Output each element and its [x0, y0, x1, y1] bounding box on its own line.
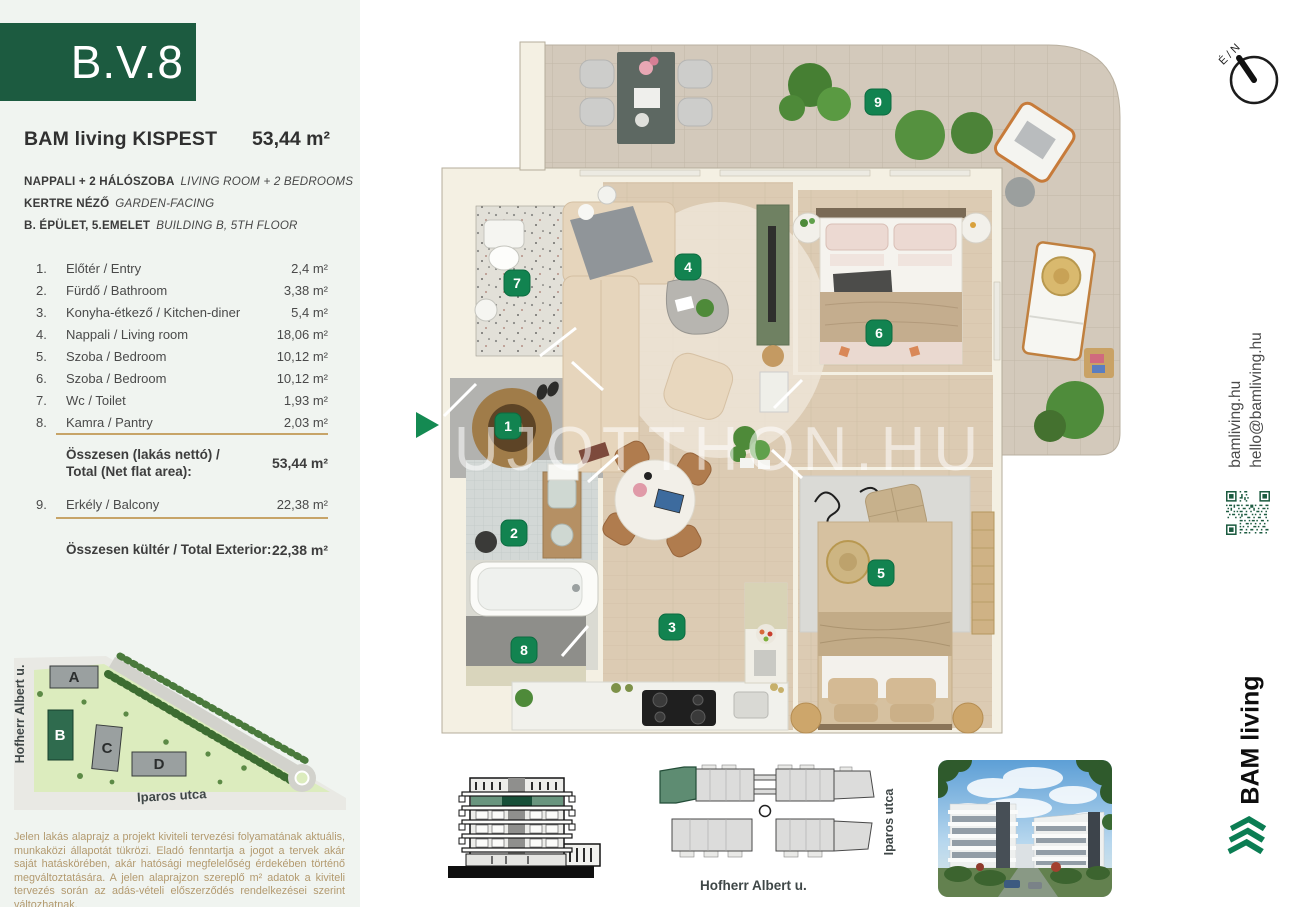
- room-name: Erkély / Balcony: [66, 497, 159, 519]
- spec-hu: KERTRE NÉZŐ: [24, 197, 109, 210]
- room-num: 3.: [36, 305, 66, 327]
- room-area: 10,12 m²: [277, 371, 328, 393]
- room-name: Konyha-étkező / Kitchen-diner: [66, 305, 240, 327]
- table-row: 2.Fürdő / Bathroom3,38 m²: [36, 283, 328, 305]
- table-row: 1.Előtér / Entry2,4 m²: [36, 261, 328, 283]
- balcony-row: 9. Erkély / Balcony 22,38 m²: [36, 497, 328, 519]
- total-exterior-value: 22,38 m²: [272, 542, 328, 558]
- tv-unit: [757, 205, 789, 412]
- ground: [448, 866, 594, 878]
- svg-text:6: 6: [875, 325, 883, 341]
- room-area: 10,12 m²: [277, 349, 328, 371]
- brand-logo-text: BAM living: [1237, 675, 1266, 804]
- room-num: 2.: [36, 283, 66, 305]
- dining-flowers: [633, 483, 647, 497]
- book-table: [1084, 348, 1114, 378]
- table-row: 4.Nappali / Living room18,06 m²: [36, 327, 328, 349]
- pillow: [894, 224, 956, 250]
- table-row: 3.Konyha-étkező / Kitchen-diner5,4 m²: [36, 305, 328, 327]
- toilet-tank: [484, 220, 524, 248]
- terrace-side-table: [1005, 177, 1035, 207]
- total-exterior-label: Összesen kültér / Total Exterior:: [66, 541, 271, 558]
- website-text: bamliving.hu: [1225, 332, 1246, 468]
- room-table: 1.Előtér / Entry2,4 m² 2.Fürdő / Bathroo…: [36, 261, 328, 437]
- marker-6: 6: [866, 320, 892, 346]
- total-net-row: Összesen (lakás nettó) / Total (Net flat…: [66, 446, 328, 480]
- total-net-label-hu: Összesen (lakás nettó) /: [66, 446, 220, 463]
- contact-block: bamliving.hu hello@bamliving.hu: [1225, 332, 1267, 468]
- kitchen-column: [745, 583, 787, 683]
- toilet: [489, 246, 519, 270]
- kitchen-counter: [512, 682, 788, 730]
- room-area: 3,38 m²: [284, 283, 328, 305]
- annex: [562, 844, 600, 866]
- svg-text:5: 5: [877, 565, 885, 581]
- building-d-label: D: [154, 756, 165, 773]
- room-num: 7.: [36, 393, 66, 415]
- project-title: BAM living KISPEST: [24, 128, 217, 151]
- brochure-page: B.V.8 BAM living KISPEST 53,44 m² NAPPAL…: [0, 0, 1293, 907]
- spec-hu: B. ÉPÜLET, 5.EMELET: [24, 219, 150, 232]
- appliance: [754, 650, 776, 676]
- table-plant: [696, 299, 714, 317]
- svg-text:9: 9: [874, 94, 882, 110]
- room-name: Fürdő / Bathroom: [66, 283, 167, 305]
- duvet-fold: [818, 612, 952, 656]
- street-label-hofherr-vertical: Hofherr Albert u.: [13, 665, 27, 764]
- key-plan: [656, 763, 880, 859]
- room-num: 9.: [36, 497, 66, 519]
- nightstand: [961, 213, 991, 243]
- table-row: 5.Szoba / Bedroom10,12 m²: [36, 349, 328, 371]
- keyplan-core: [760, 806, 771, 817]
- cooktop: [642, 690, 716, 726]
- pillow: [828, 678, 878, 704]
- roundabout-center: [296, 772, 309, 785]
- watermark-text: UJOTTHON.HU: [454, 415, 986, 484]
- photo-left-building: [948, 802, 1018, 868]
- side-table: [791, 703, 821, 733]
- marker-3: 3: [659, 614, 685, 640]
- separator-line: [56, 517, 328, 519]
- sink: [734, 692, 768, 718]
- marker-5: 5: [868, 560, 894, 586]
- spec-en: GARDEN-FACING: [115, 197, 214, 210]
- room-name: Szoba / Bedroom: [66, 371, 166, 393]
- total-net-label-en: Total (Net flat area):: [66, 463, 220, 480]
- tray: [634, 88, 660, 108]
- floor-lamp: [598, 186, 616, 204]
- building-render-photo: [938, 760, 1112, 897]
- total-area-value: 53,44 m²: [252, 128, 330, 151]
- table-row: 6.Szoba / Bedroom10,12 m²: [36, 371, 328, 393]
- keyplan-street-right: Iparos utca: [882, 789, 896, 856]
- room-area: 2,4 m²: [291, 261, 328, 283]
- tv: [768, 226, 776, 322]
- email-text: hello@bamliving.hu: [1246, 332, 1267, 468]
- qr-code: [1226, 491, 1270, 535]
- basket: [762, 345, 784, 367]
- svg-text:4: 4: [684, 259, 692, 275]
- room-area: 18,06 m²: [277, 327, 328, 349]
- room-name: Szoba / Bedroom: [66, 349, 166, 371]
- photo-right-building: [1032, 812, 1104, 872]
- ground-floor: [466, 854, 566, 866]
- building-elevation: [446, 768, 606, 882]
- spec-line: NAPPALI + 2 HÁLÓSZOBALIVING ROOM + 2 BED…: [24, 175, 354, 197]
- spec-en: BUILDING B, 5TH FLOOR: [156, 219, 297, 232]
- disclaimer-text: Jelen lakás alaprajz a projekt kiviteli …: [14, 831, 345, 907]
- keyplan-street-bottom: Hofherr Albert u.: [700, 878, 807, 893]
- svg-text:3: 3: [668, 619, 676, 635]
- keyplan-units: [672, 769, 874, 851]
- bowl: [635, 113, 649, 127]
- svg-text:7: 7: [513, 275, 521, 291]
- total-exterior-row: Összesen kültér / Total Exterior: 22,38 …: [66, 541, 328, 558]
- table-row: 7.Wc / Toilet1,93 m²: [36, 393, 328, 415]
- room-num: 4.: [36, 327, 66, 349]
- svg-text:2: 2: [510, 525, 518, 541]
- marker-9: 9: [865, 89, 891, 115]
- brand-chevrons-icon: [1222, 816, 1270, 858]
- svg-text:8: 8: [520, 642, 528, 658]
- building-c-label: C: [102, 740, 113, 757]
- pillow: [826, 224, 888, 250]
- spec-hu: NAPPALI + 2 HÁLÓSZOBA: [24, 175, 175, 188]
- separator-line: [56, 433, 328, 435]
- spec-en: LIVING ROOM + 2 BEDROOMS: [181, 175, 354, 188]
- building-a-label: A: [69, 669, 80, 686]
- side-table: [953, 703, 983, 733]
- room-name: Előtér / Entry: [66, 261, 141, 283]
- room-name: Nappali / Living room: [66, 327, 188, 349]
- total-net-label: Összesen (lakás nettó) / Total (Net flat…: [66, 446, 220, 480]
- room-num: 1.: [36, 261, 66, 283]
- kitchen-plant: [515, 689, 533, 707]
- nightstand: [793, 213, 823, 243]
- spec-line: KERTRE NÉZŐGARDEN-FACING: [24, 197, 354, 219]
- headboard: [818, 724, 952, 730]
- total-net-value: 53,44 m²: [272, 455, 328, 471]
- keyplan-unit-highlighted: [660, 767, 696, 803]
- room-area: 22,38 m²: [277, 497, 328, 519]
- building-b-label: B: [55, 727, 66, 744]
- floor-plan: 1 2 3 4 5 6 7 8 9 UJOTTHON.HU: [420, 30, 1125, 735]
- spec-lines: NAPPALI + 2 HÁLÓSZOBALIVING ROOM + 2 BED…: [24, 175, 354, 241]
- laundry-basket: [475, 531, 497, 553]
- room-name: Wc / Toilet: [66, 393, 126, 415]
- wc-sink: [475, 299, 497, 321]
- title-row: BAM living KISPEST 53,44 m²: [24, 128, 330, 151]
- sidebar: B.V.8 BAM living KISPEST 53,44 m² NAPPAL…: [0, 0, 360, 907]
- compass: É / N: [1212, 34, 1288, 110]
- unit-code-badge: B.V.8: [0, 23, 196, 101]
- room-num: 5.: [36, 349, 66, 371]
- marker-7: 7: [504, 270, 530, 296]
- basin-round: [551, 524, 573, 546]
- headboard: [816, 208, 966, 218]
- marker-4: 4: [675, 254, 701, 280]
- pillow: [886, 678, 936, 704]
- marker-8: 8: [511, 637, 537, 663]
- room-area: 1,93 m²: [284, 393, 328, 415]
- room-area: 5,4 m²: [291, 305, 328, 327]
- spec-line: B. ÉPÜLET, 5.EMELETBUILDING B, 5TH FLOOR: [24, 219, 354, 241]
- room-num: 6.: [36, 371, 66, 393]
- marker-2: 2: [501, 520, 527, 546]
